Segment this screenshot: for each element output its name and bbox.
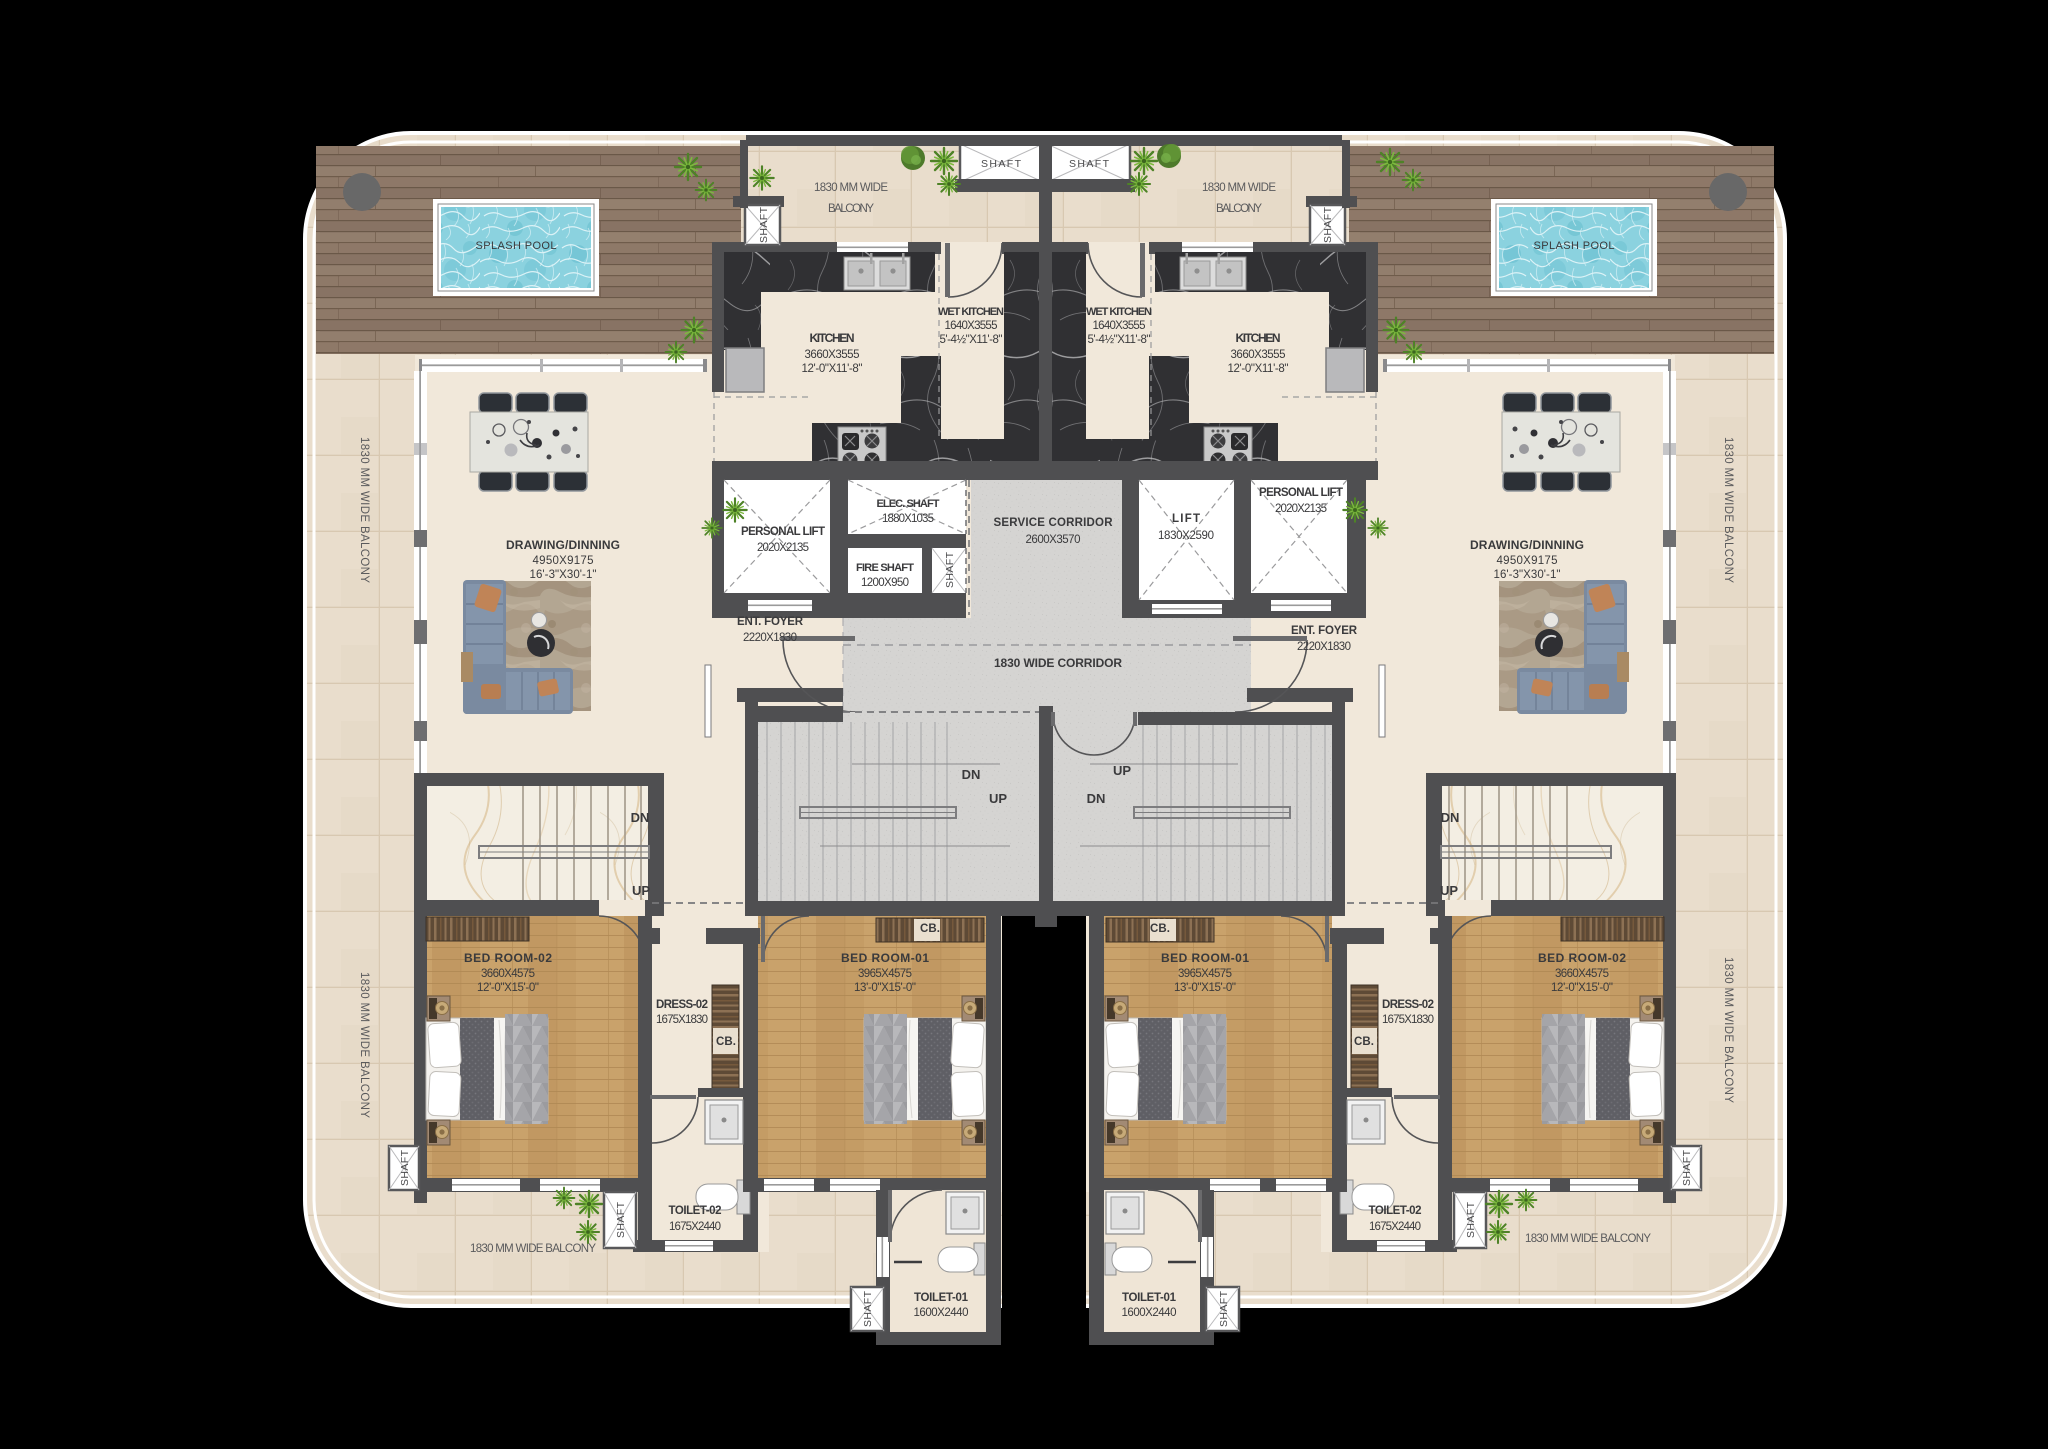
svg-text:12'-0"X15'-0": 12'-0"X15'-0" bbox=[477, 982, 539, 994]
svg-text:SHAFT: SHAFT bbox=[399, 1149, 411, 1186]
svg-text:TOILET-02: TOILET-02 bbox=[669, 1205, 722, 1217]
svg-text:ENT. FOYER: ENT. FOYER bbox=[737, 616, 804, 628]
svg-text:WET KITCHEN: WET KITCHEN bbox=[1086, 306, 1152, 318]
svg-text:PERSONAL LIFT: PERSONAL LIFT bbox=[1259, 487, 1343, 499]
svg-text:ENT. FOYER: ENT. FOYER bbox=[1291, 625, 1358, 637]
svg-text:1640X3555: 1640X3555 bbox=[1093, 320, 1146, 332]
svg-text:3965X4575: 3965X4575 bbox=[1178, 968, 1232, 980]
svg-text:TOILET-01: TOILET-01 bbox=[914, 1292, 969, 1304]
svg-text:SHAFT: SHAFT bbox=[615, 1201, 627, 1238]
svg-text:SHAFT: SHAFT bbox=[1465, 1201, 1477, 1238]
svg-text:1830 MM WIDE BALCONY: 1830 MM WIDE BALCONY bbox=[470, 1243, 596, 1255]
svg-text:1830 WIDE CORRIDOR: 1830 WIDE CORRIDOR bbox=[994, 656, 1122, 670]
svg-text:1830 MM WIDE: 1830 MM WIDE bbox=[814, 182, 888, 194]
svg-text:DRAWING/DINNING: DRAWING/DINNING bbox=[1470, 538, 1584, 552]
svg-text:SHAFT: SHAFT bbox=[1322, 206, 1334, 243]
svg-text:UP: UP bbox=[632, 883, 650, 898]
svg-text:3660X3555: 3660X3555 bbox=[805, 349, 860, 361]
svg-text:BED ROOM-01: BED ROOM-01 bbox=[841, 951, 929, 965]
svg-text:SHAFT: SHAFT bbox=[944, 551, 956, 588]
svg-text:2020X2135: 2020X2135 bbox=[1275, 503, 1327, 515]
svg-text:2220X1830: 2220X1830 bbox=[1297, 641, 1351, 653]
svg-text:1675X1830: 1675X1830 bbox=[656, 1014, 708, 1026]
svg-text:1830X2590: 1830X2590 bbox=[1158, 530, 1214, 542]
svg-text:2020X2135: 2020X2135 bbox=[757, 542, 809, 554]
svg-text:SERVICE CORRIDOR: SERVICE CORRIDOR bbox=[994, 517, 1114, 529]
svg-text:1830 MM WIDE: 1830 MM WIDE bbox=[1202, 182, 1276, 194]
svg-text:1830 MM WIDE BALCONY: 1830 MM WIDE BALCONY bbox=[358, 437, 370, 583]
svg-text:DN: DN bbox=[631, 810, 650, 825]
svg-text:TOILET-02: TOILET-02 bbox=[1369, 1205, 1422, 1217]
svg-text:SPLASH POOL: SPLASH POOL bbox=[476, 240, 557, 252]
svg-text:1600X2440: 1600X2440 bbox=[1122, 1307, 1177, 1319]
svg-text:DN: DN bbox=[1441, 810, 1460, 825]
svg-text:5'-4½"X11'-8": 5'-4½"X11'-8" bbox=[1088, 334, 1151, 346]
svg-text:16'-3"X30'-1": 16'-3"X30'-1" bbox=[1494, 569, 1561, 581]
svg-text:CB.: CB. bbox=[716, 1036, 736, 1048]
svg-text:3660X4575: 3660X4575 bbox=[1555, 968, 1609, 980]
svg-text:CB.: CB. bbox=[1354, 1036, 1374, 1048]
svg-text:KITCHEN: KITCHEN bbox=[810, 331, 855, 345]
svg-text:FIRE SHAFT: FIRE SHAFT bbox=[856, 562, 914, 574]
svg-text:UP: UP bbox=[1440, 883, 1458, 898]
svg-text:SHAFT: SHAFT bbox=[981, 158, 1022, 170]
svg-text:DN: DN bbox=[1087, 791, 1106, 806]
svg-text:SHAFT: SHAFT bbox=[1069, 158, 1110, 170]
svg-text:BED ROOM-02: BED ROOM-02 bbox=[464, 951, 552, 965]
svg-text:4950X9175: 4950X9175 bbox=[1497, 555, 1558, 567]
svg-text:2600X3570: 2600X3570 bbox=[1026, 534, 1081, 546]
svg-text:DRESS-02: DRESS-02 bbox=[656, 999, 708, 1011]
svg-text:1675X1830: 1675X1830 bbox=[1382, 1014, 1434, 1026]
svg-text:12'-0"X11'-8": 12'-0"X11'-8" bbox=[802, 363, 863, 375]
svg-text:16'-3"X30'-1": 16'-3"X30'-1" bbox=[530, 569, 597, 581]
svg-text:LIFT: LIFT bbox=[1172, 513, 1200, 525]
svg-text:1600X2440: 1600X2440 bbox=[914, 1307, 969, 1319]
svg-text:1830 MM WIDE BALCONY: 1830 MM WIDE BALCONY bbox=[358, 972, 370, 1118]
svg-text:4950X9175: 4950X9175 bbox=[533, 555, 594, 567]
svg-text:1200X950: 1200X950 bbox=[861, 577, 909, 589]
svg-text:SPLASH POOL: SPLASH POOL bbox=[1534, 240, 1615, 252]
svg-text:12'-0"X11'-8": 12'-0"X11'-8" bbox=[1228, 363, 1289, 375]
svg-text:13'-0"X15'-0": 13'-0"X15'-0" bbox=[854, 982, 916, 994]
svg-text:1830 MM WIDE BALCONY: 1830 MM WIDE BALCONY bbox=[1722, 957, 1734, 1103]
svg-text:5'-4½"X11'-8": 5'-4½"X11'-8" bbox=[940, 334, 1003, 346]
svg-text:KITCHEN: KITCHEN bbox=[1236, 331, 1281, 345]
svg-text:3660X4575: 3660X4575 bbox=[481, 968, 535, 980]
svg-text:SHAFT: SHAFT bbox=[862, 1290, 874, 1327]
svg-text:1830 MM WIDE BALCONY: 1830 MM WIDE BALCONY bbox=[1722, 437, 1734, 583]
svg-text:2220X1830: 2220X1830 bbox=[743, 632, 797, 644]
svg-text:1640X3555: 1640X3555 bbox=[945, 320, 998, 332]
svg-text:SHAFT: SHAFT bbox=[1681, 1149, 1693, 1186]
svg-text:1675X2440: 1675X2440 bbox=[1369, 1221, 1421, 1233]
svg-text:SHAFT: SHAFT bbox=[758, 206, 770, 243]
svg-text:ELEC. SHAFT: ELEC. SHAFT bbox=[877, 498, 940, 510]
svg-text:DRESS-02: DRESS-02 bbox=[1382, 999, 1434, 1011]
svg-text:BALCONY: BALCONY bbox=[828, 203, 874, 215]
svg-text:1675X2440: 1675X2440 bbox=[669, 1221, 721, 1233]
svg-text:UP: UP bbox=[1113, 763, 1131, 778]
svg-text:BED ROOM-02: BED ROOM-02 bbox=[1538, 951, 1626, 965]
svg-text:TOILET-01: TOILET-01 bbox=[1122, 1292, 1177, 1304]
svg-text:13'-0"X15'-0": 13'-0"X15'-0" bbox=[1174, 982, 1236, 994]
svg-text:PERSONAL LIFT: PERSONAL LIFT bbox=[741, 526, 825, 538]
svg-text:CB.: CB. bbox=[920, 923, 940, 935]
svg-text:1880X1035: 1880X1035 bbox=[882, 513, 934, 525]
svg-text:SHAFT: SHAFT bbox=[1218, 1290, 1230, 1327]
svg-text:DN: DN bbox=[962, 767, 981, 782]
svg-text:BED ROOM-01: BED ROOM-01 bbox=[1161, 951, 1249, 965]
svg-text:1830 MM WIDE BALCONY: 1830 MM WIDE BALCONY bbox=[1525, 1233, 1651, 1245]
svg-text:3965X4575: 3965X4575 bbox=[858, 968, 912, 980]
svg-text:CB.: CB. bbox=[1150, 923, 1170, 935]
svg-text:12'-0"X15'-0": 12'-0"X15'-0" bbox=[1551, 982, 1613, 994]
svg-text:UP: UP bbox=[989, 791, 1007, 806]
svg-text:DRAWING/DINNING: DRAWING/DINNING bbox=[506, 538, 620, 552]
svg-text:BALCONY: BALCONY bbox=[1216, 203, 1262, 215]
svg-text:3660X3555: 3660X3555 bbox=[1231, 349, 1286, 361]
svg-text:WET KITCHEN: WET KITCHEN bbox=[938, 306, 1004, 318]
